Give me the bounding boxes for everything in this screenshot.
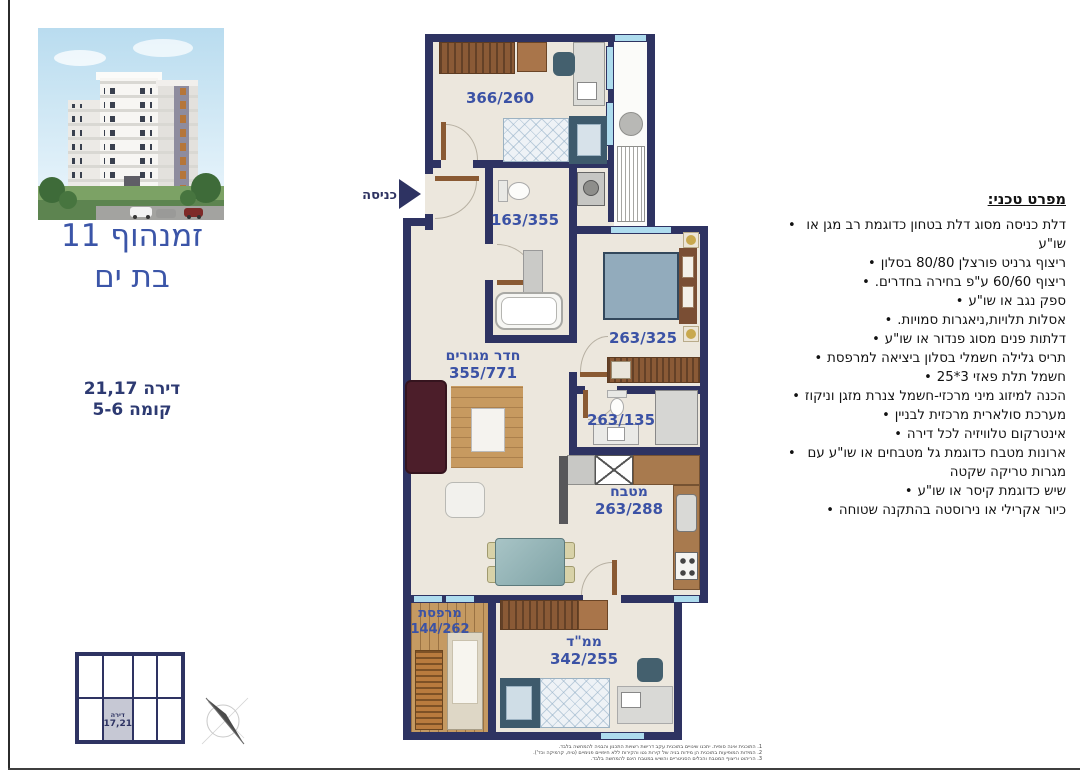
wall-bath2-left — [569, 386, 577, 455]
bullet-icon: • — [792, 387, 800, 406]
chair-bedroom — [553, 52, 575, 76]
wall-bath2-bottom — [569, 447, 708, 455]
wall — [403, 732, 488, 740]
wall-safe-right — [674, 603, 682, 740]
pillow-master — [682, 256, 694, 278]
bathtub-inner — [501, 297, 557, 325]
room-label-living: חדר מגורים 355/771 — [437, 348, 529, 382]
wall — [647, 34, 655, 234]
toilet-tank-bath2 — [607, 390, 627, 398]
stove — [675, 552, 698, 580]
lamp-master — [686, 329, 696, 339]
spec-item: •דלת כניסה מסוג דלת בטחון כדוגמת רב מגן … — [788, 216, 1066, 254]
bed-safe-room — [540, 678, 610, 728]
apartment-number: דירה 21,17 — [28, 379, 236, 400]
tech-spec-panel: מפרט טכני: •דלת כניסה מסוג דלת בטחון כדו… — [788, 192, 1066, 520]
door-leaf-safe-room — [612, 560, 617, 595]
compass-icon — [196, 692, 254, 750]
wall — [569, 372, 577, 386]
toilet-tank-bath — [498, 180, 508, 202]
kitchen-sink — [676, 494, 697, 532]
closet-safe-room — [500, 600, 578, 630]
spec-item: •תריס גלילה חשמלי בסלון ביציאה למרפסת — [814, 349, 1066, 368]
floor-plan: כניסה — [355, 18, 770, 758]
desk-master — [611, 361, 631, 379]
room-label-kitchen: מטבח 263/288 — [589, 484, 669, 518]
balcony-table — [619, 112, 643, 136]
toilet-bath — [508, 182, 530, 200]
wall-bath-bottom — [485, 335, 577, 343]
entrance-arrow-icon — [399, 179, 421, 209]
tech-spec-title: מפרט טכני: — [788, 192, 1066, 208]
room-label-master: 263/325 — [601, 330, 685, 347]
sofa — [405, 380, 447, 474]
room-label-bedroom: 366/260 — [455, 90, 545, 107]
building-illustration — [38, 28, 224, 220]
wall-bath-left — [485, 168, 493, 244]
room-label-bath2: 263/135 — [579, 412, 663, 429]
cabinet-safe-room — [578, 600, 608, 630]
door-leaf-master — [580, 372, 608, 377]
window-terrace — [413, 595, 443, 603]
spec-item: •דלתות פנים מסוג פנדור או שו"ע — [872, 330, 1066, 349]
pillow-bedroom — [577, 124, 601, 156]
entrance-label: כניסה — [355, 188, 397, 203]
window-terrace — [445, 595, 475, 603]
window-master — [610, 226, 672, 234]
wall-bath-left — [485, 280, 493, 335]
bullet-icon: • — [862, 273, 870, 292]
bullet-icon: • — [788, 216, 796, 235]
bullet-icon: • — [905, 482, 913, 501]
floor-entrance-gap — [425, 174, 433, 214]
pillow-safe-room — [506, 686, 532, 720]
bullet-icon: • — [885, 311, 893, 330]
spec-item: •אסלות תלויות,ניאגרות סמויות. — [885, 311, 1066, 330]
sink-bath2 — [607, 427, 625, 441]
spec-item: •כיור אקרילי או נירוסטה בהתקנה שטוחה — [826, 501, 1066, 520]
bed-bedroom — [503, 118, 569, 162]
spec-item: •חשמל תלת פאזי 3*25 — [924, 368, 1066, 387]
project-title-line2: בת ים — [28, 257, 236, 298]
room-label-terrace: מרפסת 144/262 — [407, 606, 473, 638]
spec-item: •ספק נגב או שו"ע — [956, 292, 1066, 311]
spec-item: •ארונות מטבח כדוגמת גל מטבחים או שו"ע עם… — [788, 444, 1066, 482]
radiator-louver — [617, 146, 645, 222]
kitchen-counter-gray — [567, 455, 595, 485]
room-label-safe-room: ממ"ד 342/255 — [539, 634, 629, 668]
bottom-border-rule — [8, 768, 1080, 770]
computer-bedroom — [577, 82, 597, 100]
window-safe-room — [600, 732, 645, 740]
wall-niche — [569, 168, 577, 226]
window — [606, 102, 614, 146]
armchair — [445, 482, 485, 518]
bullet-icon: • — [894, 425, 902, 444]
bullet-icon: • — [956, 292, 964, 311]
coffee-table — [471, 408, 505, 452]
wall — [403, 218, 411, 740]
printer-safe-room — [621, 692, 641, 708]
bullet-icon: • — [814, 349, 822, 368]
spec-item: •הכנה למיזוג מיני מרכזי-חשמל צנרת מזגן ו… — [792, 387, 1066, 406]
building-rendering — [38, 28, 224, 220]
wall — [488, 732, 600, 740]
wall — [425, 34, 433, 174]
locator-cell — [78, 655, 103, 698]
spec-item: •אינטרקום טלוויזיה לכל דירה — [894, 425, 1066, 444]
locator-cell — [103, 655, 133, 698]
room-label-bath: 163/355 — [483, 212, 567, 229]
left-border-rule — [8, 0, 10, 770]
bullet-icon: • — [872, 330, 880, 349]
pillow-master — [682, 286, 694, 308]
locator-cell — [157, 655, 182, 698]
unit-locator-grid: דירה 17,21 — [75, 652, 185, 744]
washing-machine-drum — [583, 180, 599, 196]
project-title: זמנהוף 11 בת ים — [28, 216, 236, 298]
dining-table — [495, 538, 565, 586]
spec-item: •מערכת סולארית מרכזית לבניין — [882, 406, 1066, 425]
window — [606, 46, 614, 90]
dresser-bedroom — [517, 42, 547, 72]
spec-item: •ריצוף 60/60 ע"פ בחירה בחדרים. — [862, 273, 1066, 292]
footnote-line: 3. הריהוט וריצוף המטבח והכלים הסניטריים … — [420, 756, 762, 762]
wall-master-left — [569, 234, 577, 340]
wall — [403, 595, 413, 603]
locator-cell — [78, 698, 103, 741]
footnotes: 1. התוכנית אינה סופית. יתכנו שינויים בתו… — [420, 744, 762, 763]
wall — [700, 595, 708, 603]
apartment-floor: קומה 5-6 — [28, 400, 236, 421]
apartment-title: דירה 21,17 קומה 5-6 — [28, 379, 236, 421]
chair-safe-room — [637, 658, 663, 682]
project-title-line1: זמנהוף 11 — [28, 216, 236, 257]
lamp-master — [686, 235, 696, 245]
brochure-sheet: זמנהוף 11 בת ים דירה 21,17 קומה 5-6 — [0, 0, 1080, 778]
locator-cell — [133, 655, 158, 698]
bullet-icon: • — [826, 501, 834, 520]
closet-bedroom — [439, 42, 515, 74]
bed-master — [603, 252, 679, 320]
kitchen-counter-top — [633, 455, 700, 485]
bullet-icon: • — [788, 444, 796, 463]
terrace-slat-bench — [415, 650, 443, 730]
bullet-icon: • — [882, 406, 890, 425]
spec-item: •שיש כדוגמת קיסר או שו"ע — [905, 482, 1066, 501]
tv-unit — [559, 456, 568, 524]
wall — [433, 160, 441, 168]
spec-item: •ריצוף גרניט פורצלן 80/80 בסלון — [868, 254, 1066, 273]
refrigerator — [595, 455, 633, 485]
locator-cell-highlighted: דירה 17,21 — [103, 698, 133, 741]
window — [614, 34, 647, 42]
terrace-lounge-cushion — [452, 640, 478, 704]
window-kitchen — [673, 595, 700, 603]
wall-terrace-divider — [488, 603, 496, 732]
bullet-icon: • — [868, 254, 876, 273]
wall-right-outer — [700, 226, 708, 603]
wall — [621, 595, 673, 603]
locator-cell — [133, 698, 158, 741]
bullet-icon: • — [924, 368, 932, 387]
wall — [645, 732, 682, 740]
locator-cell — [157, 698, 182, 741]
